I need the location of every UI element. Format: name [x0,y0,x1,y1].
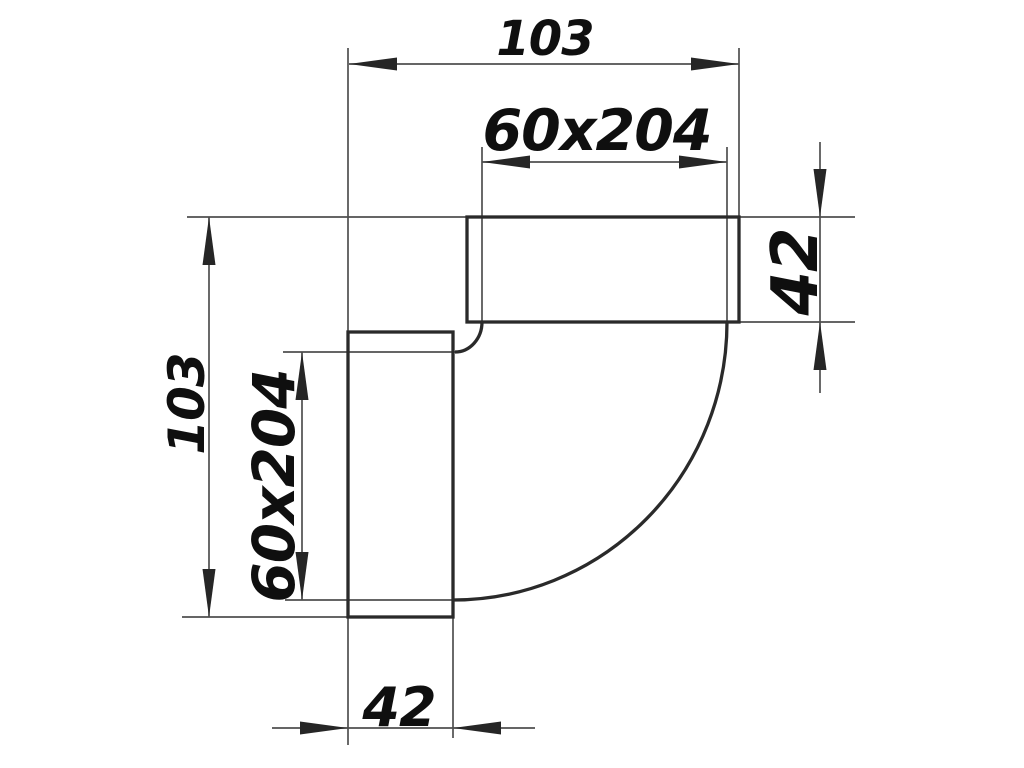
arrowhead-right-height-bottom [814,322,827,370]
arrowhead-bottom-width-left [300,722,348,735]
arrowhead-top-width-right [691,58,739,71]
arrowhead-bottom-width-right [453,722,501,735]
label-left-connector: 60x204 [240,369,308,602]
label-top-width: 103 [496,11,593,67]
label-bottom-width: 42 [361,676,435,739]
label-right-height: 42 [759,228,833,316]
label-top-connector: 60x204 [482,98,711,164]
arrowhead-left-height-bottom [203,569,216,617]
drawing-canvas: 103 60x204 42 103 60x204 42 [0,0,1024,768]
inner-radius-curve [455,322,482,352]
outer-radius-curve [453,322,727,600]
elbow-outline [348,217,739,617]
dimension-labels: 103 60x204 42 103 60x204 42 [158,11,833,739]
arrowhead-left-height-top [203,217,216,265]
vertical-socket-outline [348,332,453,617]
arrowhead-right-height-top [814,169,827,217]
horizontal-socket-outline [467,217,739,322]
technical-drawing: 103 60x204 42 103 60x204 42 [0,0,1024,768]
arrowhead-top-width-left [349,58,397,71]
label-left-height: 103 [158,353,216,454]
